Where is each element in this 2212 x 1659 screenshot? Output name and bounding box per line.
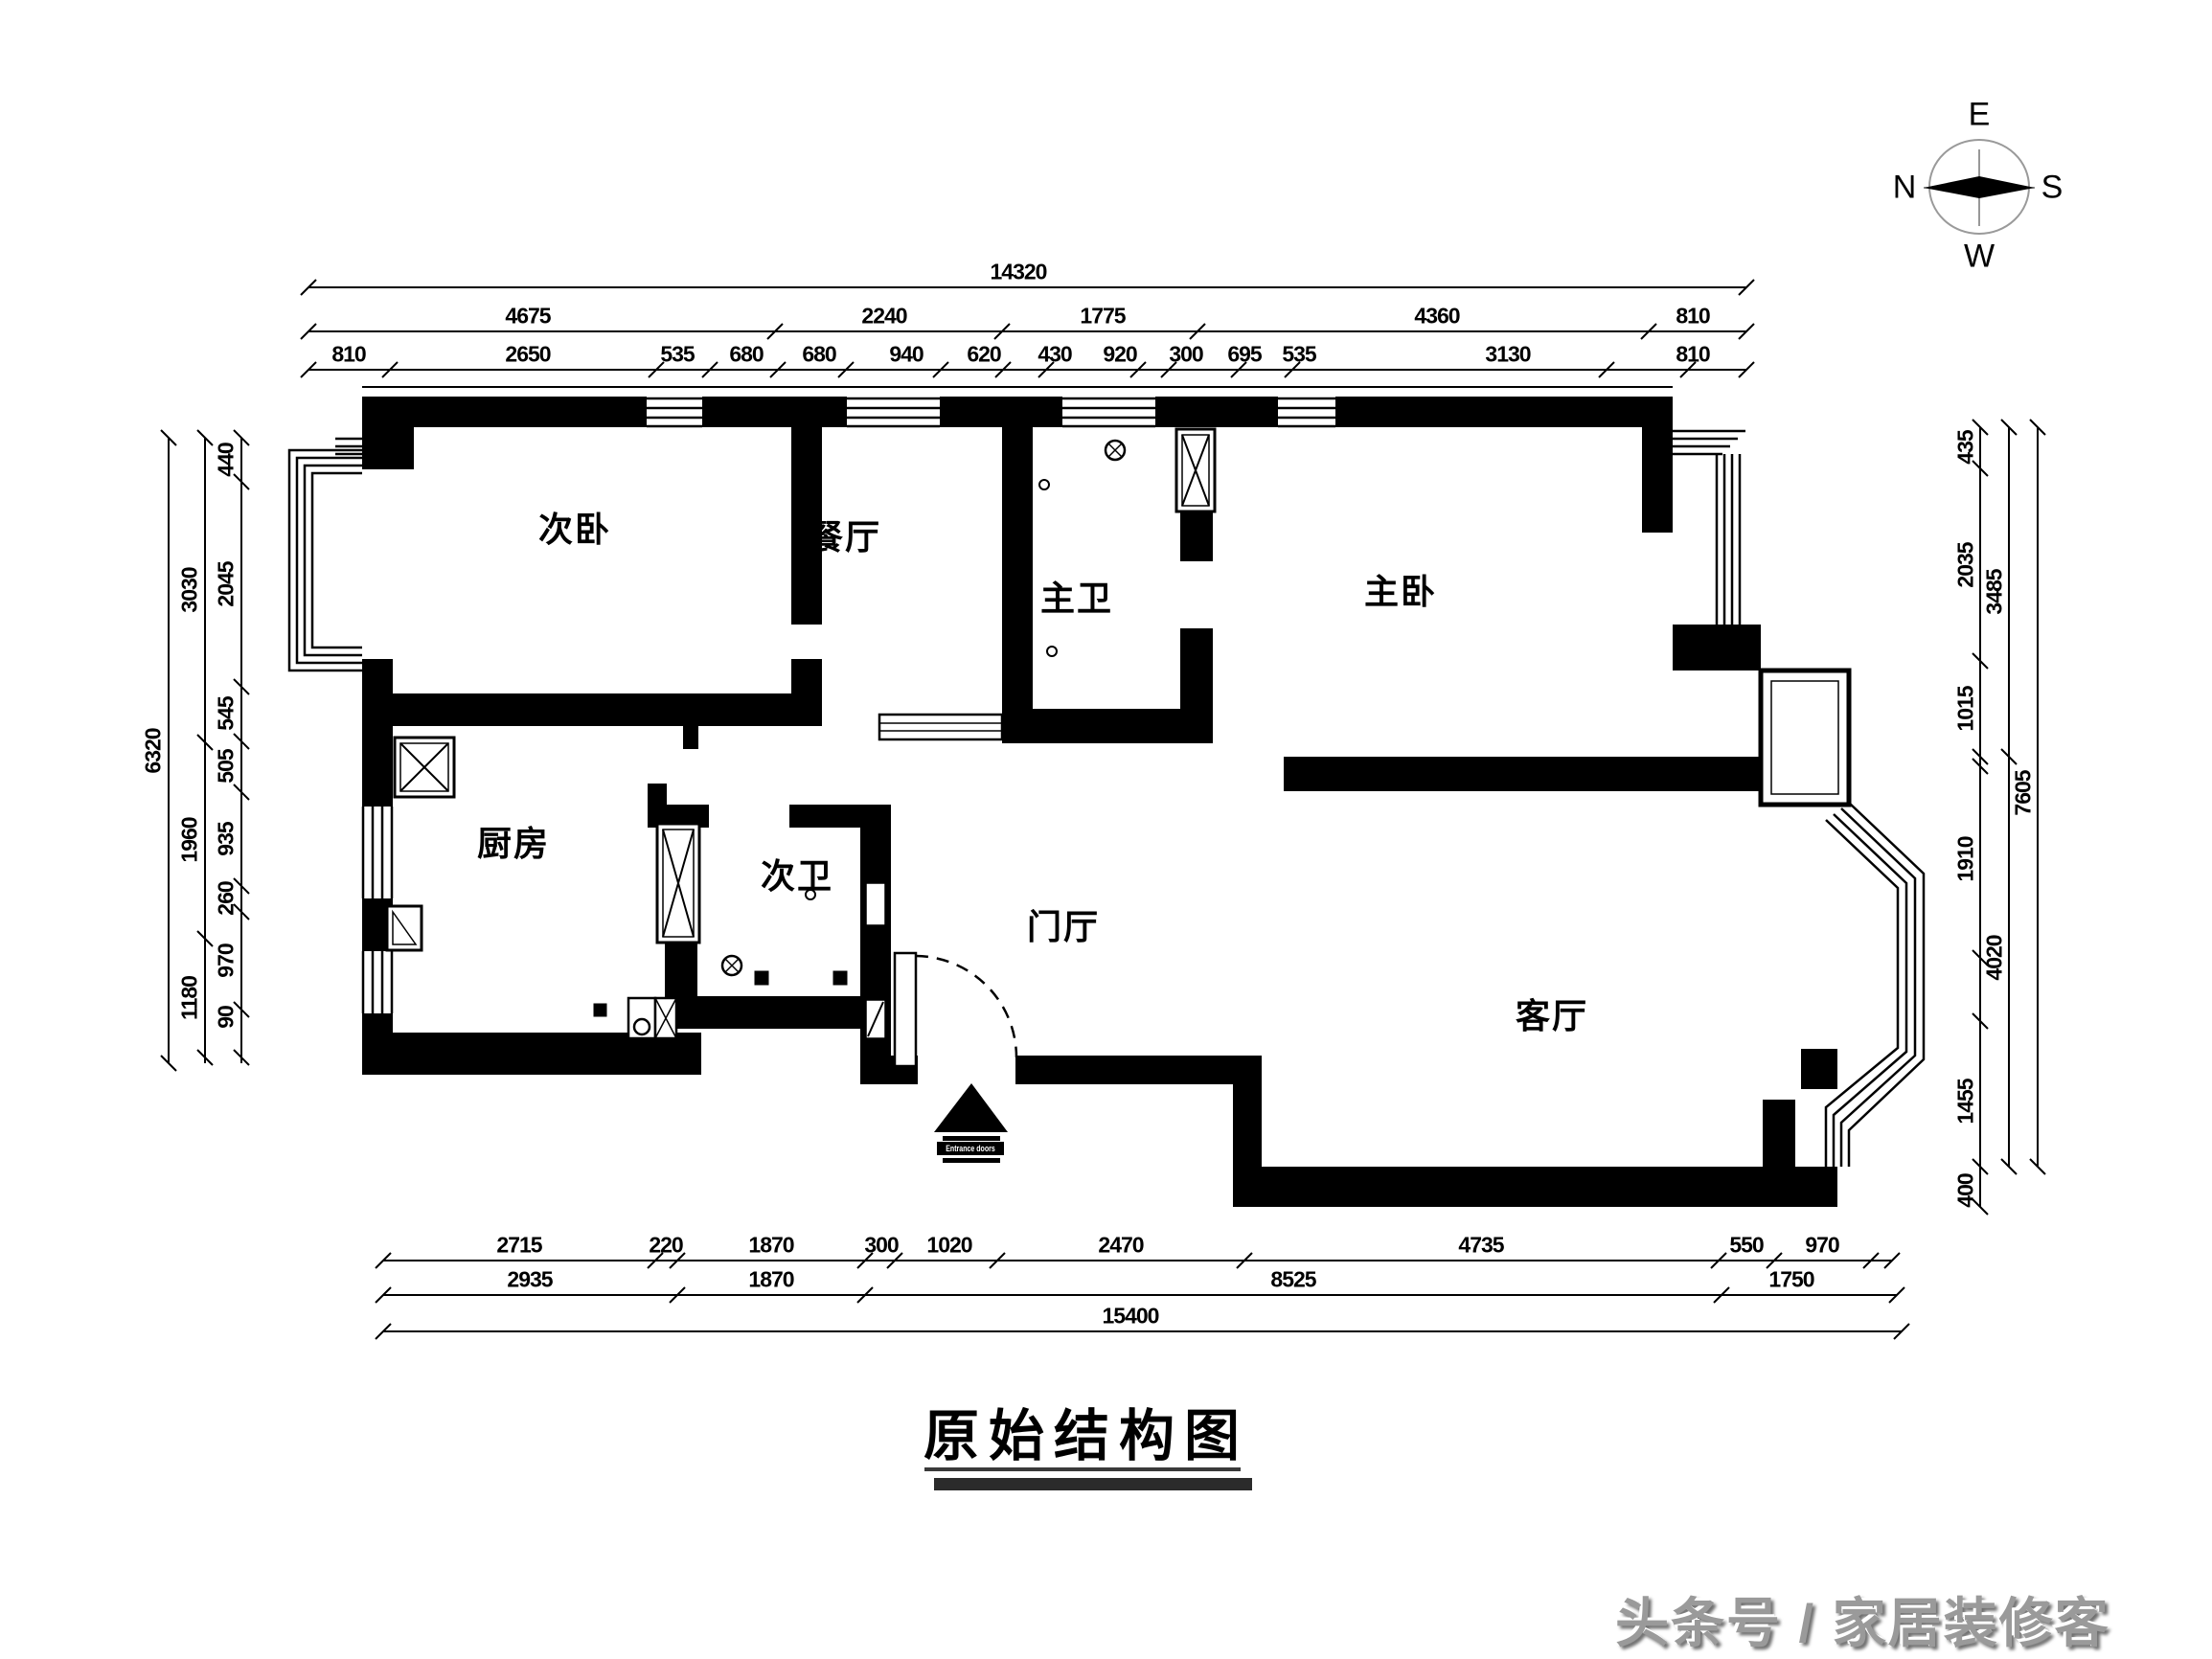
bath2-drain-icons	[722, 890, 847, 985]
dim-label: 1870	[748, 1233, 793, 1259]
dim-label: 535	[1282, 342, 1315, 368]
dim-label: 695	[1227, 342, 1261, 368]
dim-label: 3485	[1982, 569, 2008, 614]
dim-label: 220	[649, 1233, 682, 1259]
wall-vent-icon	[387, 906, 422, 950]
dim-label: 940	[889, 342, 923, 368]
dim-label: 810	[1676, 342, 1709, 368]
dim-label: 3030	[177, 567, 203, 612]
dim-label: 2240	[861, 304, 906, 330]
dim-label: 935	[214, 822, 239, 855]
dim-label: 6320	[141, 728, 167, 773]
dim-label: 680	[729, 342, 763, 368]
dim-label: 2935	[507, 1267, 552, 1293]
dim-label: 4675	[505, 304, 550, 330]
watermark: 头条号 / 家居装修客	[1615, 1580, 2110, 1658]
title-underline-thin	[924, 1467, 1241, 1471]
dim-label: 1020	[926, 1233, 971, 1259]
floorplan-page: 次卧 餐厅 主卫 主卧 厨房 次卫 门厅 客厅 E N S W 14320 46…	[0, 0, 2212, 1659]
dim-label: 4360	[1414, 304, 1459, 330]
door-leaf-icon	[895, 953, 916, 1066]
dim-label: 2035	[1953, 542, 1979, 587]
door-swing-arc	[916, 956, 1016, 1057]
dim-label: 1775	[1080, 304, 1125, 330]
dim-label: 8525	[1270, 1267, 1315, 1293]
compass-south: S	[2041, 170, 2064, 207]
room-label-master-bedroom: 主卧	[1364, 564, 1437, 614]
dim-label: 300	[1169, 342, 1202, 368]
dim-label: 1910	[1953, 836, 1979, 881]
entrance-door	[895, 953, 1016, 1066]
compass-rose	[1924, 140, 2035, 234]
dim-label: 505	[214, 749, 239, 783]
room-label-master-bath: 主卫	[1040, 571, 1113, 621]
compass-east: E	[1969, 97, 1991, 134]
masterbath-drain-icons	[1039, 441, 1125, 656]
page-title: 原始结构图	[924, 1391, 1249, 1471]
shaft-box-kitchen-corner-icon	[395, 738, 454, 797]
dim-label: 970	[214, 943, 239, 977]
dim-label: 970	[1805, 1233, 1838, 1259]
dim-label: 430	[1038, 342, 1071, 368]
room-label-dining: 餐厅	[809, 510, 881, 559]
dim-label: 545	[214, 696, 239, 730]
dim-label: 680	[802, 342, 835, 368]
room-label-bedroom2: 次卧	[538, 502, 611, 552]
room-label-kitchen: 厨房	[477, 816, 550, 866]
dim-label: 4020	[1982, 935, 2008, 980]
dim-label: 920	[1103, 342, 1136, 368]
dim-label: 1960	[177, 817, 203, 862]
compass-north: N	[1893, 170, 1917, 207]
dim-label: 1015	[1953, 686, 1979, 731]
dim-label: 3130	[1485, 342, 1530, 368]
dim-label: 90	[214, 1006, 239, 1029]
dim-label: 2045	[214, 561, 239, 606]
dim-label: 810	[331, 342, 365, 368]
dim-label: 1750	[1768, 1267, 1813, 1293]
dim-label: 550	[1729, 1233, 1763, 1259]
dim-label: 810	[1676, 304, 1709, 330]
dim-label: 300	[864, 1233, 898, 1259]
dim-label: 2650	[505, 342, 550, 368]
shaft-box-masterbath-icon	[1176, 429, 1215, 511]
entrance-doors-label: Entrance doors	[946, 1144, 994, 1153]
dim-label: 2470	[1098, 1233, 1143, 1259]
dim-label: 2715	[496, 1233, 541, 1259]
compass-west: W	[1964, 239, 1995, 276]
shaft-box-bath2-icon	[657, 824, 699, 943]
title-underline-thick	[934, 1478, 1252, 1490]
dim-label: 4735	[1458, 1233, 1503, 1259]
dim-label: 14320	[991, 260, 1047, 285]
room-label-foyer: 门厅	[1027, 899, 1100, 949]
dim-label: 435	[1953, 430, 1979, 464]
dim-label: 535	[660, 342, 694, 368]
dim-label: 1870	[748, 1267, 793, 1293]
dim-label: 1180	[177, 976, 203, 1020]
dim-label: 15400	[1103, 1304, 1159, 1329]
room-label-bath2: 次卫	[761, 849, 833, 898]
dim-label: 620	[967, 342, 1000, 368]
kitchen-appliance-icons	[594, 998, 676, 1038]
dim-label: 7605	[2011, 770, 2037, 815]
dim-label: 260	[214, 881, 239, 915]
dim-label: 1455	[1953, 1079, 1979, 1124]
dim-label: 440	[214, 443, 239, 476]
room-label-living: 客厅	[1516, 989, 1588, 1038]
compass-needle-icon	[1924, 176, 2035, 198]
dim-label: 400	[1953, 1173, 1979, 1207]
sliding-door-icon	[879, 715, 1002, 739]
